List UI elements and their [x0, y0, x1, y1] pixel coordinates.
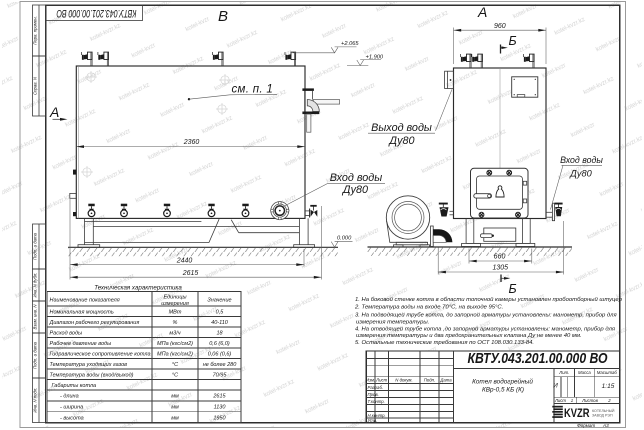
svg-text:Выход воды: Выход воды — [371, 122, 432, 134]
svg-text:Единицы: Единицы — [163, 294, 186, 300]
svg-text:измерения: измерения — [161, 301, 189, 307]
svg-text:Пров.: Пров. — [368, 392, 379, 397]
svg-text:Т.контр.: Т.контр. — [368, 399, 385, 404]
svg-text:0,6 (6,0): 0,6 (6,0) — [209, 341, 230, 347]
svg-text:660: 660 — [494, 254, 506, 261]
svg-text:Справ. N: Справ. N — [33, 76, 38, 95]
svg-text:Листов: Листов — [581, 398, 598, 403]
svg-text:Вход воды: Вход воды — [560, 155, 603, 165]
svg-text:°С: °С — [172, 362, 178, 368]
svg-text:1. На боковой стенке котла в: 1. На боковой стенке котла в области топ… — [355, 296, 623, 303]
svg-text:Ду80: Ду80 — [388, 135, 414, 147]
svg-text:Б: Б — [509, 282, 517, 296]
svg-text:%: % — [173, 320, 178, 326]
svg-text:0,5: 0,5 — [216, 310, 225, 316]
svg-text:И: И — [553, 383, 558, 390]
svg-text:°С: °С — [172, 373, 178, 379]
svg-text:измерения температуры и два пр: измерения температуры и два предохраните… — [356, 333, 582, 339]
svg-text:Изм.: Изм. — [366, 378, 375, 383]
svg-text:0.000: 0.000 — [337, 236, 352, 242]
svg-text:Масса: Масса — [578, 370, 591, 375]
svg-text:960: 960 — [494, 23, 506, 30]
svg-text:KVZR: KVZR — [564, 408, 590, 420]
svg-text:1305: 1305 — [493, 265, 509, 272]
svg-text:+1.900: +1.900 — [366, 54, 384, 60]
svg-text:3. На подводящей трубе котла,: 3. На подводящей трубе котла, до запорно… — [355, 312, 617, 319]
svg-text:2. Температура воды на входе: 2. Температура воды на входе 70°С, на вы… — [354, 305, 503, 311]
svg-text:Гидравлическое сопротивление к: Гидравлическое сопротивление котла — [50, 352, 151, 358]
svg-text:2615: 2615 — [212, 394, 226, 400]
svg-text:А3: А3 — [602, 423, 609, 428]
svg-text:18: 18 — [216, 331, 223, 337]
svg-text:Лист: Лист — [375, 378, 387, 383]
svg-text:Подп.: Подп. — [424, 378, 435, 383]
svg-text:Рабочее давление воды: Рабочее давление воды — [50, 341, 112, 347]
svg-text:измерения температуры.: измерения температуры. — [356, 319, 429, 325]
svg-text:1:15: 1:15 — [602, 383, 615, 390]
svg-text:Габариты котла: Габариты котла — [52, 383, 97, 389]
svg-text:мм: мм — [171, 415, 179, 421]
svg-text:Вход воды: Вход воды — [330, 172, 382, 184]
svg-text:1130: 1130 — [214, 405, 227, 411]
svg-text:мм: мм — [171, 405, 179, 411]
svg-text:- длина: - длина — [60, 394, 79, 400]
svg-text:Подп. и дата: Подп. и дата — [33, 341, 38, 369]
svg-text:Инв. N подл.: Инв. N подл. — [33, 387, 38, 412]
svg-text:Разраб.: Разраб. — [368, 385, 384, 390]
svg-text:м3/ч: м3/ч — [169, 331, 180, 337]
svg-text:В: В — [218, 8, 228, 25]
svg-text:Дата: Дата — [439, 378, 452, 383]
svg-text:Температура уходящих газов: Температура уходящих газов — [50, 362, 128, 368]
svg-text:КВТУ.043.201.00.000 ВО: КВТУ.043.201.00.000 ВО — [56, 7, 136, 19]
svg-text:Инв. N дубл.: Инв. N дубл. — [33, 273, 38, 298]
svg-text:Наименование показателя: Наименование показателя — [50, 297, 120, 303]
svg-text:Температура воды (вход/выход): Температура воды (вход/выход) — [50, 373, 134, 379]
svg-text:Ду80: Ду80 — [342, 184, 368, 196]
svg-text:КВТУ.043.201.00.000 ВО: КВТУ.043.201.00.000 ВО — [468, 350, 608, 367]
svg-text:Значение: Значение — [207, 297, 231, 303]
svg-text:Расход воды: Расход воды — [50, 331, 83, 337]
svg-text:см. п. 1: см. п. 1 — [232, 83, 274, 95]
svg-text:0,06 (0,6): 0,06 (0,6) — [208, 352, 232, 358]
svg-text:Утв.: Утв. — [368, 418, 378, 423]
svg-text:- ширина: - ширина — [60, 405, 83, 411]
svg-text:Номинальная мощность: Номинальная мощность — [50, 310, 114, 316]
svg-text:Лист: Лист — [554, 398, 566, 403]
svg-text:Лит.: Лит. — [558, 370, 569, 375]
svg-text:2615: 2615 — [182, 270, 199, 277]
svg-text:Взам. инв. N: Взам. инв. N — [33, 304, 38, 330]
svg-text:Ду80: Ду80 — [569, 169, 592, 179]
svg-text:Масштаб: Масштаб — [597, 370, 618, 375]
svg-text:70/95: 70/95 — [213, 373, 228, 379]
svg-text:МПа (кгс/см2): МПа (кгс/см2) — [157, 341, 193, 347]
svg-text:КОТЕЛЬНЫЙ: КОТЕЛЬНЫЙ — [592, 409, 615, 413]
svg-text:КВр-0,5 КБ (К): КВр-0,5 КБ (К) — [482, 387, 524, 394]
svg-text:Перв. примен.: Перв. примен. — [33, 16, 38, 45]
svg-text:Б: Б — [509, 34, 517, 48]
svg-text:МПа (кгс/см2): МПа (кгс/см2) — [157, 352, 193, 358]
svg-text:ЗАВОД РЭП: ЗАВОД РЭП — [592, 413, 613, 417]
svg-text:А: А — [49, 104, 59, 120]
svg-text:Формат: Формат — [577, 423, 595, 428]
svg-text:N докум.: N докум. — [395, 378, 412, 383]
svg-text:Техническая характеристика: Техническая характеристика — [94, 284, 182, 291]
svg-text:не более 280: не более 280 — [203, 362, 238, 368]
svg-text:+2.065: +2.065 — [341, 41, 359, 47]
svg-text:1950: 1950 — [213, 415, 226, 421]
svg-text:Подп. и дата: Подп. и дата — [33, 232, 38, 260]
svg-text:мм: мм — [171, 394, 179, 400]
svg-text:4. На отводящей трубе котла ,: 4. На отводящей трубе котла ,до запорной… — [355, 326, 616, 333]
svg-text:2440: 2440 — [176, 257, 193, 264]
svg-text:А: А — [477, 4, 487, 20]
svg-text:МВт: МВт — [169, 310, 182, 316]
svg-text:Диапазон рабочего регулировани: Диапазон рабочего регулирования — [49, 320, 140, 326]
svg-text:40-110: 40-110 — [211, 320, 229, 326]
svg-text:- высота: - высота — [60, 415, 84, 421]
svg-text:Котел водогрейный: Котел водогрейный — [472, 378, 533, 386]
svg-text:5. Остальные технические треб: 5. Остальные технические требования по О… — [355, 340, 534, 346]
svg-text:2360: 2360 — [183, 139, 200, 146]
